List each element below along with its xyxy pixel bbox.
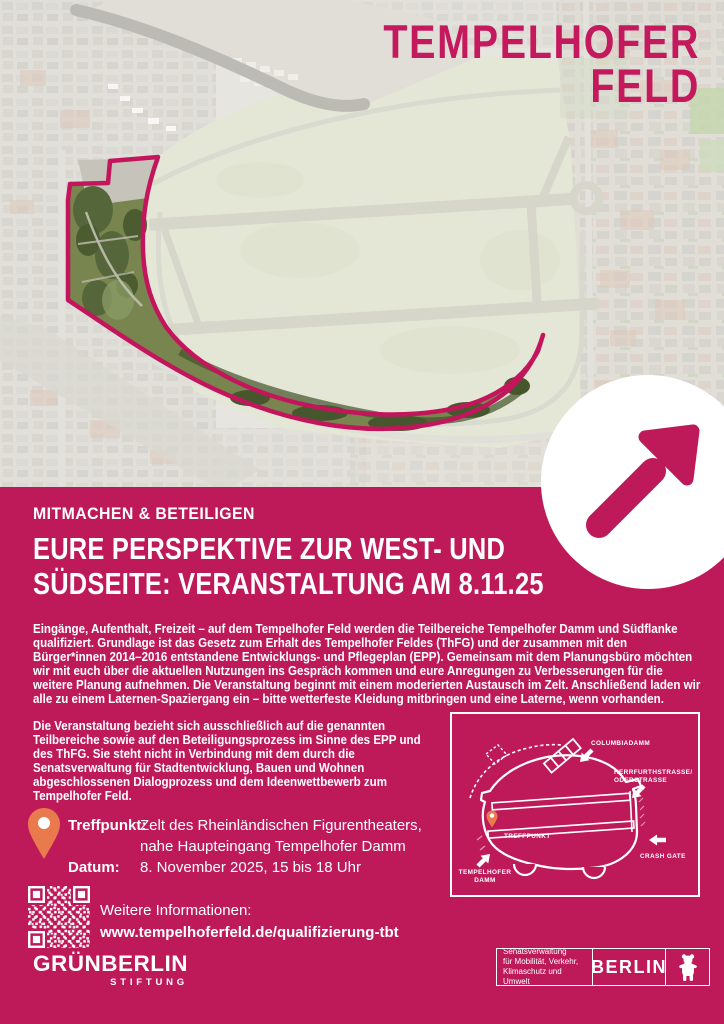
- berlin-bear-cell: [666, 949, 709, 985]
- label-tempelhofer-damm-2: DAMM: [474, 877, 495, 884]
- treffpunkt-label: Treffpunkt:: [68, 817, 146, 834]
- label-treffpunkt: TREFFPUNKT: [504, 833, 551, 840]
- eyebrow-text: MITMACHEN & BETEILIGEN: [33, 504, 255, 524]
- label-crash-gate: CRASH GATE: [640, 853, 686, 860]
- berlin-wordmark: BERLIN: [593, 949, 666, 985]
- brand-logo-line1: TEMPELHOFER: [383, 20, 700, 64]
- page-title: EURE PERSPEKTIVE ZUR WEST- UND SÜDSEITE:…: [33, 531, 544, 601]
- senate-line3: Klimaschutz und Umwelt: [503, 967, 586, 987]
- arrow-badge: [541, 375, 724, 589]
- berlin-bear-icon: [677, 952, 699, 982]
- headline-line2: SÜDSEITE: VERANSTALTUNG AM 8.11.25: [33, 566, 544, 601]
- treffpunkt-value-line1: Zelt des Rheinländischen Figurentheaters…: [140, 817, 422, 834]
- senate-department: Senatsverwaltung für Mobilität, Verkehr,…: [497, 949, 593, 985]
- map-diagram: COLUMBIADAMM HERRFURTHSTRASSE/ ODERSTRAS…: [452, 714, 697, 894]
- meeting-point-map: COLUMBIADAMM HERRFURTHSTRASSE/ ODERSTRAS…: [450, 712, 700, 897]
- gruenberlin-logo: GRÜNBERLIN STIFTUNG: [33, 953, 188, 987]
- crash-gate-arrow-icon: [649, 835, 666, 846]
- treffpunkt-value-line2: nahe Haupteingang Tempelhofer Damm: [140, 838, 406, 855]
- map-pin-icon: [487, 811, 498, 828]
- senate-line1: Senatsverwaltung: [503, 947, 586, 957]
- disclaimer-paragraph: Die Veranstaltung bezieht sich ausschlie…: [33, 719, 442, 803]
- stiftung-wordmark: STIFTUNG: [33, 978, 188, 988]
- brand-logo: TEMPELHOFER FELD: [383, 20, 700, 108]
- brand-logo-line2: FELD: [383, 64, 700, 108]
- label-columbiadamm: COLUMBIADAMM: [591, 740, 650, 747]
- datum-label: Datum:: [68, 859, 120, 876]
- intro-paragraph: Eingänge, Aufenthalt, Freizeit – auf dem…: [33, 622, 703, 706]
- location-pin-icon: [27, 807, 61, 861]
- label-tempelhofer-damm-1: TEMPELHOFER: [459, 869, 512, 876]
- qr-code: [28, 886, 90, 948]
- label-oderstrasse: ODERSTRASSE: [614, 777, 667, 784]
- senate-line2: für Mobilität, Verkehr,: [503, 957, 586, 967]
- gruenberlin-wordmark: GRÜNBERLIN: [33, 953, 188, 976]
- label-herrfurthstrasse: HERRFURTHSTRASSE/: [614, 769, 693, 776]
- senate-logo-box: Senatsverwaltung für Mobilität, Verkehr,…: [496, 948, 710, 986]
- datum-value: 8. November 2025, 15 bis 18 Uhr: [140, 859, 361, 876]
- info-url[interactable]: www.tempelhoferfeld.de/qualifizierung-tb…: [100, 924, 399, 941]
- headline-line1: EURE PERSPEKTIVE ZUR WEST- UND: [33, 531, 544, 566]
- event-poster: TEMPELHOFER FELD MITMACHEN & BETEILIGEN …: [0, 0, 724, 1024]
- tempelhofer-damm-arrow-icon: [474, 850, 494, 870]
- info-label: Weitere Informationen:: [100, 902, 251, 919]
